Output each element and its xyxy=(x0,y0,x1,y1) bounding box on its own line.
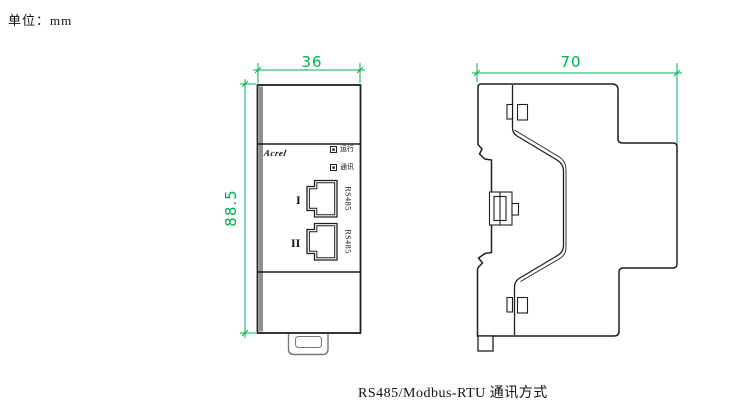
side-bottom-fasteners xyxy=(507,298,528,314)
front-din-clip-tab xyxy=(289,334,329,355)
port-1-rs485-label: RS485 xyxy=(344,184,353,214)
comm-led-icon xyxy=(331,165,337,171)
port-1-index-label: I xyxy=(296,194,301,206)
port-2-rs485-label: RS485 xyxy=(344,227,353,257)
drawing-canvas xyxy=(0,0,729,413)
brand-logo: Acrel xyxy=(263,148,287,158)
unit-label: 单位：mm xyxy=(8,10,72,29)
run-led-label: 运行 xyxy=(340,146,354,153)
port-2-index-label: II xyxy=(291,237,300,249)
side-top-fasteners xyxy=(507,105,528,121)
front-height-dimension-lines xyxy=(240,79,256,338)
comm-led-label: 通讯 xyxy=(340,164,354,171)
run-led-icon xyxy=(331,147,337,153)
front-width-dimension: 36 xyxy=(290,54,334,70)
front-height-dimension: 88.5 xyxy=(223,178,239,238)
front-left-shade xyxy=(259,87,263,332)
side-bottom-foot xyxy=(478,336,493,351)
side-view-drawing xyxy=(472,63,682,351)
drawing-caption: RS485/Modbus-RTU 通讯方式 xyxy=(358,382,548,402)
technical-drawing-page: { "meta": { "unit_label": "单位：mm", "capt… xyxy=(0,0,729,413)
side-depth-dimension: 70 xyxy=(549,54,593,70)
